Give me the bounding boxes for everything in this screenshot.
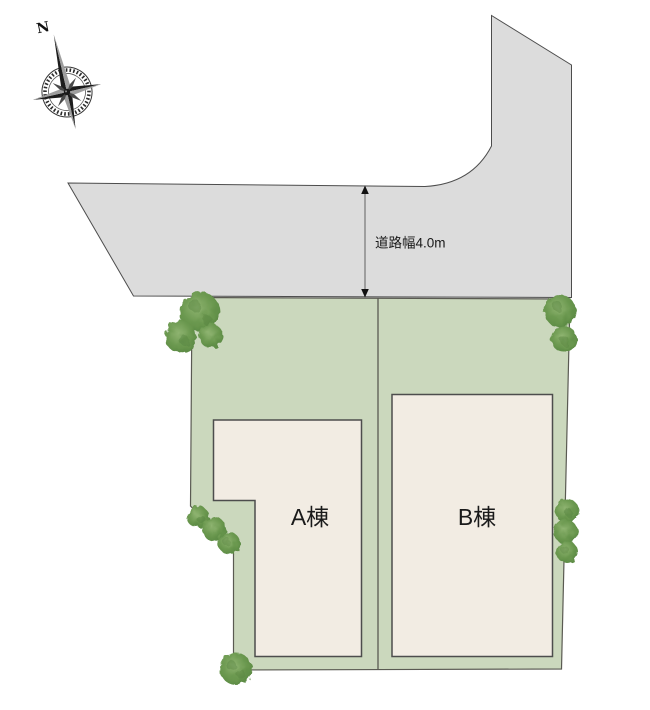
compass-rose-icon bbox=[20, 27, 110, 137]
road-width-label: 道路幅4.0m bbox=[375, 236, 446, 251]
north-label: N bbox=[35, 19, 51, 37]
building-b-label: B棟 bbox=[458, 504, 496, 530]
site-plan-page: A棟 B棟 道路幅4.0m bbox=[0, 0, 650, 710]
road-area bbox=[68, 16, 572, 298]
tree-icon bbox=[220, 653, 252, 685]
building-a-label: A棟 bbox=[291, 504, 329, 530]
tree-icon bbox=[165, 292, 223, 353]
compass-north-needle bbox=[49, 33, 71, 93]
tree-icon bbox=[554, 499, 579, 563]
site-plan-canvas: A棟 B棟 道路幅4.0m bbox=[0, 0, 650, 710]
